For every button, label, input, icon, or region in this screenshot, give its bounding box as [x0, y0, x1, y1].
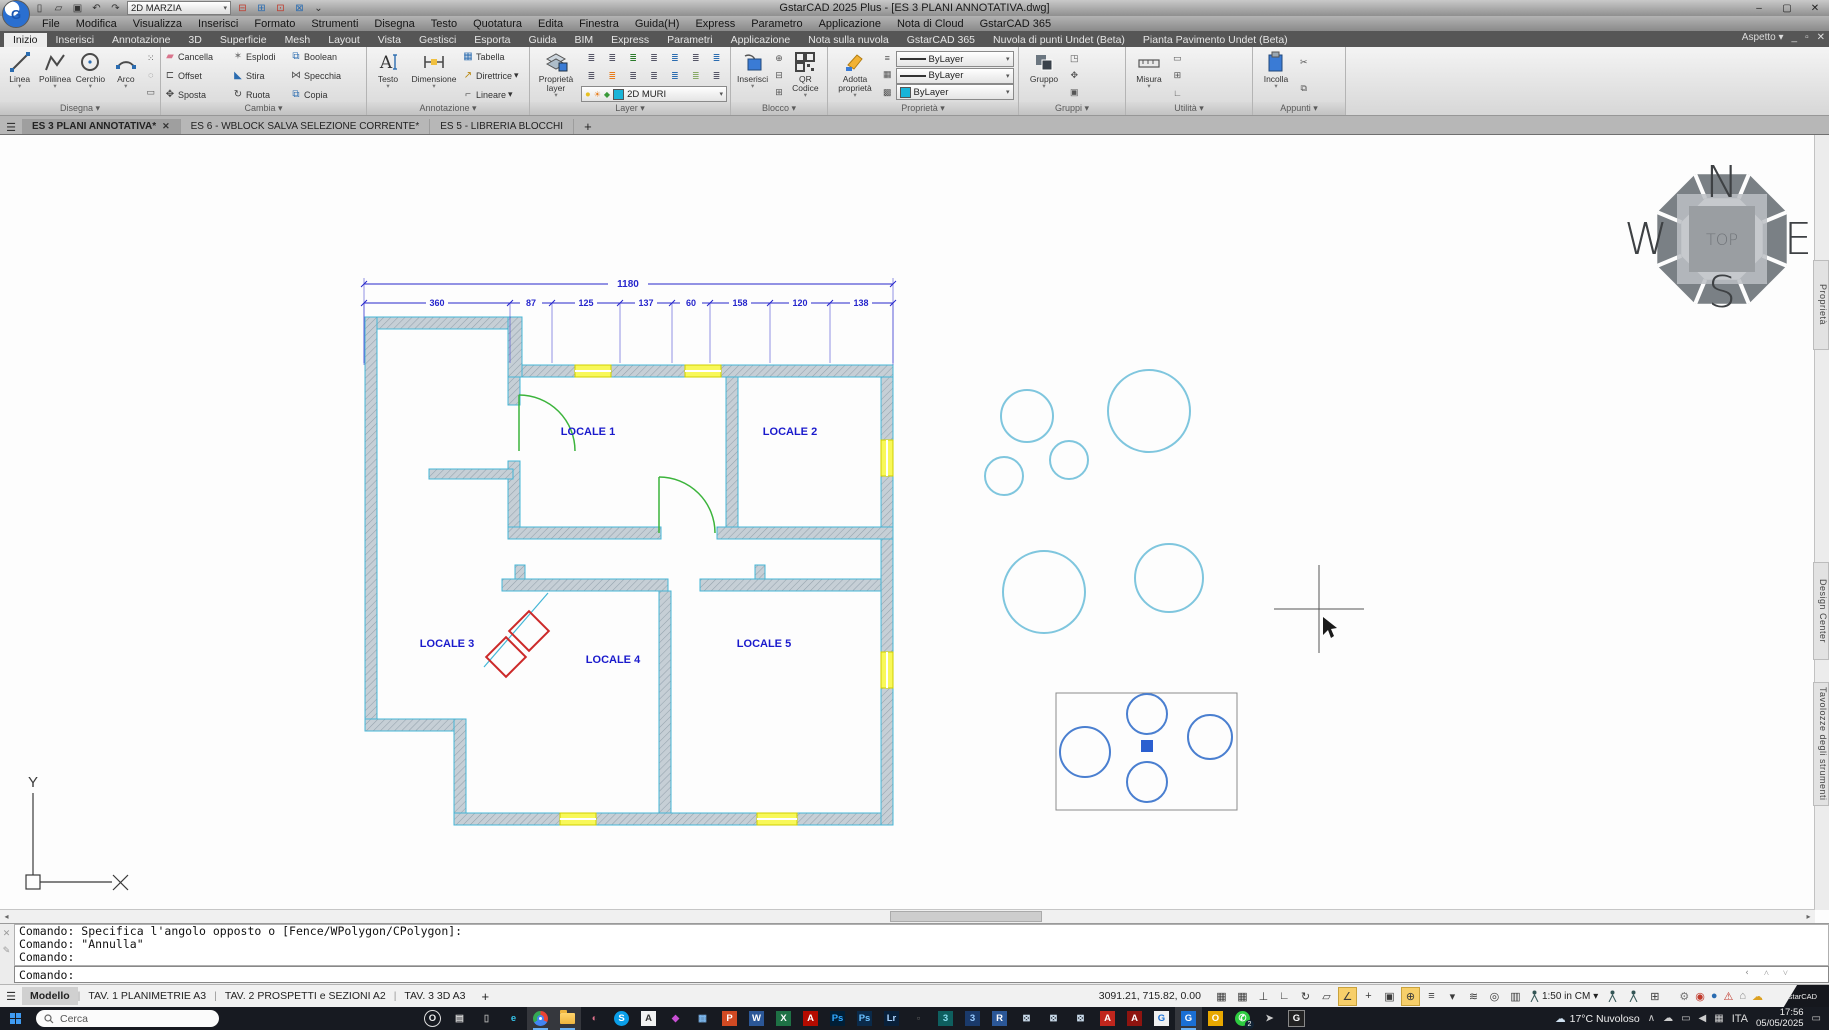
layer-tool-icon[interactable]: ≣ [713, 53, 721, 64]
ribbon-tab-nota-sulla-nuvola[interactable]: Nota sulla nuvola [799, 33, 898, 47]
button-label: Esplodi [246, 52, 276, 62]
chevron-down-icon: ▾ [18, 84, 21, 91]
menu-edita[interactable]: Edita [530, 18, 571, 30]
edit-command-icon[interactable]: ✎ [3, 945, 11, 956]
scroll-up-icon[interactable]: ˄ [1764, 968, 1769, 979]
chevron-down-icon: ▾ [514, 70, 519, 81]
keyboard-icon[interactable]: ▦ [1714, 1013, 1723, 1024]
quick-properties-icon[interactable]: ≡ [1422, 987, 1441, 1006]
maximize-button[interactable]: ▢ [1773, 3, 1801, 14]
taskbar-app-whatsapp[interactable]: ✆2 [1229, 1007, 1256, 1030]
button-inserisci[interactable]: Inserisci▾ [734, 49, 771, 102]
button-arco[interactable]: Arco▾ [109, 49, 142, 102]
attach-icon[interactable]: ⊕ [775, 53, 783, 64]
button-offset[interactable]: ⊏Offset [164, 70, 230, 81]
menu-applicazione[interactable]: Applicazione [811, 18, 889, 30]
start-button[interactable] [0, 1013, 30, 1024]
viewcube[interactable]: NWESTOP [1624, 157, 1812, 318]
clean-screen-icon[interactable]: ▥ [1506, 987, 1525, 1006]
panel-cambia: ▰Cancella✶Esplodi⧉Boolean⊏Offset◣Stira⋈S… [161, 47, 367, 115]
scroll-left-arrow-icon[interactable]: ◂ [0, 910, 13, 923]
command-history[interactable]: Comando: Specifica l'angolo opposto o [F… [14, 924, 1829, 966]
dynamic-input-icon[interactable]: ⊕ [1401, 987, 1420, 1006]
weather-text: 17°C Nuvoloso [1570, 1013, 1640, 1025]
layer-tool-icon[interactable]: ≣ [713, 71, 721, 82]
taskbar-app-notes-app[interactable]: A [635, 1007, 662, 1030]
taskbar-app-lightroom[interactable]: Lr [878, 1007, 905, 1030]
panel-label-cambia[interactable]: Cambia ▾ [161, 102, 366, 115]
taskbar-app-color-picker[interactable]: ◆ [662, 1007, 689, 1030]
ribbon-right-controls: Aspetto ▾_▫✕ [1742, 32, 1825, 43]
chevron-down-icon: ▾ [719, 90, 723, 98]
layer-tool-icon[interactable]: ≣ [692, 71, 700, 82]
button-cancella[interactable]: ▰Cancella [164, 51, 230, 62]
doc-tab-es-3-plani-annotativa[interactable]: ES 3 PLANI ANNOTATIVA*✕ [22, 119, 181, 134]
ribbon-minimize-icon[interactable]: _ [1792, 32, 1798, 43]
panel-label-gruppi[interactable]: Gruppi ▾ [1019, 102, 1125, 115]
button-label: QR Codice [787, 75, 824, 93]
hatch-icon[interactable]: ▩ [883, 87, 892, 98]
panel-tab-tavolozze-degli-strumenti[interactable]: Tavolozze degli strumenti [1813, 682, 1829, 806]
gstarcad-logo-icon[interactable]: G [2, 0, 30, 28]
security-lock-icon[interactable]: ◉ [1695, 990, 1705, 1003]
doc-tab-es-5-libreria-blocchi[interactable]: ES 5 - LIBRERIA BLOCCHI [430, 119, 574, 134]
layer-color-swatch [613, 89, 624, 100]
ribbon-tab-3d[interactable]: 3D [179, 33, 210, 47]
ribbon-tab-vista[interactable]: Vista [369, 33, 410, 47]
button-linea[interactable]: Linea▾ [3, 49, 36, 102]
cancella-icon: ▰ [164, 51, 176, 62]
layout-menu-icon[interactable]: ☰ [0, 990, 22, 1003]
ribbon-tab-annotazione[interactable]: Annotazione [103, 33, 179, 47]
group-tools[interactable]: ◳✥▣ [1068, 49, 1081, 102]
ruler-icon[interactable]: ▭ [1173, 53, 1182, 64]
taskbar-app-paint-app[interactable]: ◐ [581, 1007, 608, 1030]
button-label: Lineare [476, 90, 506, 100]
panel-label-blocco[interactable]: Blocco ▾ [731, 102, 827, 115]
misura-icon [1137, 50, 1161, 74]
clock-date: 05/05/2025 [1756, 1019, 1804, 1030]
panel-content: Gruppo▾◳✥▣ [1019, 47, 1125, 102]
layer-tool-icon[interactable]: ≣ [650, 53, 658, 64]
taskbar-app-cad-toolset-2[interactable]: ⊠ [1040, 1007, 1067, 1030]
ribbon-tab-parametri[interactable]: Parametri [658, 33, 722, 47]
donut-icon[interactable]: ◌ [148, 70, 153, 80]
annotation-scale-combo[interactable]: 1:50 in CM▾ [1530, 990, 1598, 1002]
taskbar-app-phone-link[interactable]: ▯ [473, 1007, 500, 1030]
property-tools[interactable]: ≡▦▩ [881, 49, 894, 102]
room-label: LOCALE 4 [586, 654, 641, 666]
propriet-layer-icon [544, 50, 568, 74]
taskbar-clock[interactable]: 17:5605/05/2025 [1756, 1008, 1804, 1029]
ribbon-tab-gstarcad-365[interactable]: GstarCAD 365 [898, 33, 984, 47]
display-icon[interactable]: ▭ [1681, 1013, 1690, 1024]
ribbon-tab-esporta[interactable]: Esporta [465, 33, 519, 47]
group-edit-icon[interactable]: ✥ [1070, 70, 1078, 81]
menu-strumenti[interactable]: Strumenti [303, 18, 366, 30]
taskbar-app-hidden-app[interactable]: ▫ [905, 1007, 932, 1030]
ribbon-close-icon[interactable]: ✕ [1817, 32, 1825, 43]
minimize-button[interactable]: – [1745, 3, 1773, 14]
lineweight-combo[interactable]: ByLayer▾ [896, 68, 1014, 84]
weather-cloud-icon: ☁ [1555, 1013, 1566, 1025]
ribbon-tab-layout[interactable]: Layout [319, 33, 369, 47]
taskbar-app-autocad[interactable]: A [1094, 1007, 1121, 1030]
scroll-right-arrow-icon[interactable]: ▸ [1802, 910, 1815, 923]
layer-tool-icon[interactable]: ≣ [671, 71, 679, 82]
svg-text:137: 137 [638, 298, 653, 308]
layout-tab-tav-1-planimetrie-a3[interactable]: TAV. 1 PLANIMETRIE A3 [80, 987, 214, 1005]
layout-tab-modello[interactable]: Modello [22, 987, 78, 1005]
draw-more-tools[interactable]: ⁙◌▭ [145, 49, 158, 102]
autocad-lt-icon: A [1127, 1011, 1142, 1026]
taskbar-search[interactable]: Cerca [36, 1010, 219, 1027]
customization-icon[interactable]: ⊞ [1645, 987, 1664, 1006]
annotation-autoscale-icon[interactable]: ≋ [1464, 987, 1483, 1006]
button-tabella[interactable]: ▦Tabella [462, 51, 519, 62]
taskbar-app-gstarcad-tools[interactable]: G [1283, 1007, 1310, 1030]
status-bar: ☰Modello|TAV. 1 PLANIMETRIE A3|TAV. 2 PR… [0, 984, 1829, 1007]
list-icon[interactable]: ▦ [883, 69, 892, 80]
button-ruota[interactable]: ↻Ruota [232, 89, 288, 100]
svg-text:158: 158 [732, 298, 747, 308]
zoom-tool-icon[interactable]: ◎ [1485, 987, 1504, 1006]
button-label: Boolean [304, 52, 337, 62]
copy-clip-icon[interactable]: ⧉ [1301, 83, 1307, 94]
chevron-down-icon: ▾ [804, 93, 807, 100]
esplodi-icon: ✶ [232, 51, 244, 62]
button-incolla[interactable]: Incolla▾ [1256, 49, 1296, 102]
doc-tabs-menu-icon[interactable]: ☰ [0, 121, 22, 134]
linetype-icon[interactable]: ≡ [885, 53, 890, 63]
command-history-line: Comando: Specifica l'angolo opposto o [F… [19, 925, 1824, 938]
button-qr-codice[interactable]: QR Codice▾ [787, 49, 824, 102]
notification-center-icon[interactable]: ▭ [1812, 1013, 1821, 1024]
button-adotta-propriet[interactable]: Adotta proprietà▾ [831, 49, 879, 102]
panel-tab-propriet[interactable]: Proprietà [1813, 260, 1829, 350]
taskbar-app-adobe-app[interactable]: A [797, 1007, 824, 1030]
layout-tab-tav-2-prospetti-e-sezioni-a2[interactable]: TAV. 2 PROSPETTI e SEZIONI A2 [217, 987, 394, 1005]
taskbar-app-edge[interactable]: e [500, 1007, 527, 1030]
button-cerchio[interactable]: Cerchio▾ [74, 49, 107, 102]
menu-testo[interactable]: Testo [423, 18, 465, 30]
taskbar-app-chrome[interactable] [527, 1007, 554, 1030]
close-button[interactable]: ✕ [1801, 3, 1829, 14]
combo-value: 2D MURI [627, 89, 666, 100]
layer-tool-icon[interactable]: ≣ [671, 53, 679, 64]
chevron-down-icon: ▾ [1006, 55, 1010, 63]
ribbon-tab-express[interactable]: Express [602, 33, 658, 47]
property-combos: ByLayer▾ByLayer▾ByLayer▾ [896, 49, 1014, 102]
button-propriet-layer[interactable]: Proprietà layer▾ [533, 49, 579, 102]
scroll-left-icon[interactable]: ‹ [1744, 968, 1749, 979]
scroll-down-icon[interactable]: ˅ [1783, 968, 1788, 979]
menu-nota-di-cloud[interactable]: Nota di Cloud [889, 18, 972, 30]
annotation-visibility-icon[interactable]: ▾ [1443, 987, 1462, 1006]
annotation-autoadd-icon[interactable] [1603, 987, 1622, 1006]
home-icon[interactable]: ⌂ [1739, 990, 1746, 1002]
settings-gear-icon[interactable]: ⚙ [1679, 990, 1689, 1003]
object-snap-icon[interactable]: ∠ [1338, 987, 1357, 1006]
taskbar-app-task-view[interactable]: ▤ [446, 1007, 473, 1030]
panel-content: Inserisci▾⊕⊟⊞QR Codice▾ [731, 47, 827, 102]
button-esplodi[interactable]: ✶Esplodi [232, 51, 288, 62]
panel-annotazione: ATesto▾Dimensione▾▦Tabella↗Direttrice ▾⌐… [367, 47, 530, 115]
ungroup-icon[interactable]: ◳ [1070, 53, 1079, 64]
share-icon[interactable]: ● [1711, 990, 1718, 1002]
ribbon-tab-bim[interactable]: BIM [566, 33, 603, 47]
gstarcad-2025-icon: G [1181, 1011, 1196, 1026]
adotta-propriet-icon [843, 50, 867, 74]
ribbon-tab-applicazione[interactable]: Applicazione [722, 33, 800, 47]
group-select-icon[interactable]: ▣ [1070, 87, 1079, 98]
tabella-icon: ▦ [462, 51, 474, 62]
drawing-canvas[interactable]: 11803608712513760158120138LOCALE 1LOCALE… [0, 135, 1829, 923]
cloud-sync-icon[interactable]: ☁ [1752, 990, 1763, 1003]
chevron-down-icon: ▾ [124, 84, 127, 91]
ortho-mode-icon[interactable]: ∟ [1275, 987, 1294, 1006]
button-copia[interactable]: ⧉Copia [290, 89, 356, 100]
polar-tracking-icon[interactable]: ↻ [1296, 987, 1315, 1006]
layer-thaw-icon: ☀ [594, 90, 601, 99]
layer-tool-icon[interactable]: ≣ [588, 71, 596, 82]
chevron-down-icon: ▾ [89, 84, 92, 91]
ribbon-restore-icon[interactable]: ▫ [1805, 32, 1809, 43]
panel-propriet: Adotta proprietà▾≡▦▩ByLayer▾ByLayer▾ByLa… [828, 47, 1019, 115]
button-lineare[interactable]: ⌐Lineare ▾ [462, 89, 519, 100]
ribbon-tab-mesh[interactable]: Mesh [276, 33, 320, 47]
aspetto-dropdown[interactable]: Aspetto ▾ [1742, 32, 1784, 43]
panel-content: ATesto▾Dimensione▾▦Tabella↗Direttrice ▾⌐… [367, 47, 529, 102]
chevron-down-icon: ▾ [1593, 991, 1598, 1002]
taskbar-app-opera[interactable]: O [419, 1007, 446, 1030]
object-snap-tracking-icon[interactable]: + [1359, 987, 1378, 1006]
layer-tool-icon[interactable]: ≣ [609, 53, 617, 64]
menu-gstarcad-365[interactable]: GstarCAD 365 [972, 18, 1060, 30]
ribbon-tab-guida[interactable]: Guida [519, 33, 565, 47]
autocad-icon: A [1100, 1011, 1115, 1026]
close-tab-icon[interactable]: ✕ [162, 121, 170, 132]
taskbar-app-gstarcad[interactable]: G [1148, 1007, 1175, 1030]
horizontal-scrollbar[interactable]: ◂▸ [0, 909, 1815, 923]
layer-tool-icon[interactable]: ≣ [692, 53, 700, 64]
gstarcad-corner-logo: GstarCAD [1771, 985, 1829, 1007]
task-view-icon: ▤ [452, 1011, 467, 1026]
layer-tool-icon[interactable]: ≣ [609, 71, 617, 82]
layer-tool-icon[interactable]: ≣ [629, 71, 637, 82]
taskbar-app-file-explorer[interactable] [554, 1007, 581, 1030]
polilinea-icon [43, 50, 67, 74]
powerpoint-icon: P [722, 1011, 737, 1026]
panel-tab-design-center[interactable]: Design Center [1813, 562, 1829, 660]
button-misura[interactable]: Misura▾ [1129, 49, 1169, 102]
panel-content: Proprietà layer▾≣≣≣≣≣≣≣≣≣≣≣≣≣≣●☀◆2D MURI… [530, 47, 730, 102]
svg-text:120: 120 [792, 298, 807, 308]
id-point-icon[interactable]: ∟ [1173, 88, 1182, 98]
modify-row: ⊏Offset◣Stira⋈Specchia [164, 70, 356, 81]
utility-tools[interactable]: ▭⊞∟ [1171, 49, 1184, 102]
ribbon-tab-nuvola-di-punti-undet-beta[interactable]: Nuvola di punti Undet (Beta) [984, 33, 1134, 47]
tray-expand-icon[interactable]: ∧ [1648, 1013, 1655, 1024]
ucs-y-label: Y [28, 774, 38, 791]
button-label: Proprietà layer [533, 75, 579, 93]
lightroom-icon: Lr [884, 1011, 899, 1026]
button-gruppo[interactable]: Gruppo▾ [1022, 49, 1066, 102]
button-specchia[interactable]: ⋈Specchia [290, 70, 356, 81]
onedrive-icon[interactable]: ☁ [1663, 1013, 1673, 1024]
button-testo[interactable]: ATesto▾ [370, 49, 406, 102]
annotation-col: ▦Tabella↗Direttrice ▾⌐Lineare ▾ [462, 49, 519, 102]
taskbar-app-cad-toolset-1[interactable]: ⊠ [1013, 1007, 1040, 1030]
new-doc-tab-button[interactable]: + [574, 119, 602, 134]
panel-label-annotazione[interactable]: Annotazione ▾ [367, 102, 529, 115]
document-tab-bar: ☰ES 3 PLANI ANNOTATIVA*✕ES 6 - WBLOCK SA… [0, 116, 1829, 135]
taskbar-app-cad-toolset-3[interactable]: ⊠ [1067, 1007, 1094, 1030]
taskbar-app-media-app[interactable]: ➤ [1256, 1007, 1283, 1030]
cut-icon[interactable]: ✂ [1300, 57, 1308, 68]
color-combo[interactable]: ByLayer▾ [896, 84, 1014, 100]
table-block [1056, 693, 1237, 810]
language-indicator[interactable]: ITA [1732, 1013, 1748, 1025]
layer-tool-icon[interactable]: ≣ [650, 71, 658, 82]
taskbar-app-calculator[interactable]: ▦ [689, 1007, 716, 1030]
snap-mode-icon[interactable]: ▦ [1233, 987, 1252, 1006]
polar-snap-icon[interactable]: ⊥ [1254, 987, 1273, 1006]
ribbon-tab-superficie[interactable]: Superficie [211, 33, 276, 47]
3ds-max-icon: 3 [938, 1011, 953, 1026]
menu-parametro[interactable]: Parametro [743, 18, 810, 30]
button-label: Cancella [178, 52, 213, 62]
panel-label-layer[interactable]: Layer ▾ [530, 102, 730, 115]
button-stira[interactable]: ◣Stira [232, 70, 288, 81]
doc-tab-es-6-wblock-salva-selezione-corrente[interactable]: ES 6 - WBLOCK SALVA SELEZIONE CORRENTE* [181, 119, 431, 134]
boolean-icon: ⧉ [290, 51, 302, 62]
scrollbar-thumb[interactable] [890, 911, 1042, 922]
room-label: LOCALE 1 [561, 426, 615, 438]
chevron-down-icon: ▾ [386, 84, 389, 91]
button-sposta[interactable]: ✥Sposta [164, 89, 230, 100]
menu-file[interactable]: File [34, 18, 68, 30]
ribbon-tab-pianta-pavimento-undet-beta[interactable]: Pianta Pavimento Undet (Beta) [1134, 33, 1297, 47]
command-input[interactable]: Comando: ‹ ˄ ˅ [14, 966, 1829, 983]
photoshop-icon: Ps [830, 1011, 845, 1026]
menu-modifica[interactable]: Modifica [68, 18, 125, 30]
taskbar-app-skype[interactable]: S [608, 1007, 635, 1030]
clipboard-tools[interactable]: ✂⧉ [1298, 49, 1310, 102]
taskbar-app-autocad-lt[interactable]: A [1121, 1007, 1148, 1030]
button-boolean[interactable]: ⧉Boolean [290, 51, 356, 62]
weather-widget[interactable]: ☁17°C Nuvoloso [1555, 1013, 1640, 1025]
taskbar-app-revit[interactable]: R [986, 1007, 1013, 1030]
inserisci-icon [741, 50, 765, 74]
windows-taskbar: Cerca O▤▯e◐SA◆▦PWXAPsPsLr▫33R⊠⊠⊠AAGGO✆2➤… [0, 1007, 1829, 1030]
taskbar-app-office-hub[interactable]: O [1202, 1007, 1229, 1030]
menu-formato[interactable]: Formato [246, 18, 303, 30]
layer-state-icons: ≣≣≣≣≣≣≣≣≣≣≣≣≣≣ [581, 49, 727, 86]
annotation-sync-icon[interactable] [1624, 987, 1643, 1006]
menu-inserisci[interactable]: Inserisci [190, 18, 246, 30]
button-direttrice[interactable]: ↗Direttrice ▾ [462, 70, 519, 81]
menu-disegna[interactable]: Disegna [366, 18, 422, 30]
volume-icon[interactable]: ◀ [1699, 1013, 1707, 1024]
command-scroll-icons[interactable]: ‹ ˄ ˅ [1744, 968, 1788, 979]
dimension-total: 1180 [617, 279, 639, 290]
taskbar-app-powerpoint[interactable]: P [716, 1007, 743, 1030]
chevron-down-icon: ▾ [53, 84, 56, 91]
edit-block-icon[interactable]: ⊟ [775, 70, 783, 81]
panel-label-disegna[interactable]: Disegna ▾ [0, 102, 160, 115]
layer-combo[interactable]: ●☀◆2D MURI▾ [581, 86, 727, 102]
skype-icon: S [614, 1011, 629, 1026]
menu-visualizza[interactable]: Visualizza [125, 18, 190, 30]
staircase [484, 593, 549, 677]
block-tools[interactable]: ⊕⊟⊞ [773, 49, 785, 102]
menu-quotatura[interactable]: Quotatura [465, 18, 530, 30]
panel-label-appunti[interactable]: Appunti ▾ [1253, 102, 1345, 115]
ribbon-tab-inserisci[interactable]: Inserisci [47, 33, 104, 47]
layout-tab-tav-3-3d-a3[interactable]: TAV. 3 3D A3 [396, 987, 473, 1005]
panel-content: ▰Cancella✶Esplodi⧉Boolean⊏Offset◣Stira⋈S… [161, 47, 366, 102]
floor-plan-walls [365, 317, 893, 825]
layer-tool-icon[interactable]: ≣ [588, 53, 596, 64]
panel-label-utilit[interactable]: Utilità ▾ [1126, 102, 1252, 115]
taskbar-app-word[interactable]: W [743, 1007, 770, 1030]
taskbar-app-photoshop[interactable]: Ps [824, 1007, 851, 1030]
button-polilinea[interactable]: Polilinea▾ [38, 49, 71, 102]
room-label: LOCALE 3 [420, 638, 474, 650]
word-icon: W [749, 1011, 764, 1026]
ribbon-tab-gestisci[interactable]: Gestisci [410, 33, 465, 47]
new-layout-button[interactable]: + [474, 989, 498, 1004]
layer-tool-icon[interactable]: ≣ [629, 53, 637, 64]
panel-blocco: Inserisci▾⊕⊟⊞QR Codice▾Blocco ▾ [731, 47, 828, 115]
scale-value: 1:50 in CM [1542, 991, 1590, 1002]
taskbar-app-app-3-blue[interactable]: 3 [959, 1007, 986, 1030]
room-labels: LOCALE 1LOCALE 2LOCALE 3LOCALE 4LOCALE 5 [420, 426, 817, 666]
ucs-icon: Y [26, 774, 128, 890]
quick-calc-icon[interactable]: ⊞ [1174, 70, 1182, 81]
cerchio-icon [78, 50, 102, 74]
attributes-icon[interactable]: ⊞ [775, 87, 783, 98]
points-icon[interactable]: ⁙ [147, 53, 155, 64]
lineweight-display-icon[interactable]: ▣ [1380, 987, 1399, 1006]
specchia-icon: ⋈ [290, 70, 302, 81]
linetype-combo[interactable]: ByLayer▾ [896, 51, 1014, 67]
paint-app-icon: ◐ [587, 1011, 602, 1026]
button-dimensione[interactable]: Dimensione▾ [408, 49, 460, 102]
close-command-icon[interactable]: ✕ [3, 928, 11, 939]
taskbar-app-photoshop-beta[interactable]: Ps [851, 1007, 878, 1030]
window-title: GstarCAD 2025 Plus - [ES 3 PLANI ANNOTAT… [0, 2, 1829, 14]
testo-icon: A [376, 50, 400, 74]
menu-express[interactable]: Express [687, 18, 743, 30]
dynamic-ucs-icon[interactable]: ▱ [1317, 987, 1336, 1006]
taskbar-app-3ds-max[interactable]: 3 [932, 1007, 959, 1030]
revit-icon: R [992, 1011, 1007, 1026]
crosshair-cursor [1274, 565, 1364, 653]
taskbar-app-excel[interactable]: X [770, 1007, 797, 1030]
ribbon-tab-inizio[interactable]: Inizio [4, 33, 47, 47]
panel-label-propriet[interactable]: Proprietà ▾ [828, 102, 1018, 115]
menu-finestra[interactable]: Finestra [571, 18, 627, 30]
rectangle-icon[interactable]: ▭ [147, 87, 156, 98]
viewcube-east: E [1784, 214, 1812, 265]
menu-guida-h[interactable]: Guida(H) [627, 18, 688, 30]
grid-display-icon[interactable]: ▦ [1212, 987, 1231, 1006]
svg-text:360: 360 [429, 298, 444, 308]
taskbar-app-gstarcad-2025[interactable]: G [1175, 1007, 1202, 1030]
alert-icon[interactable]: ⚠ [1723, 990, 1733, 1003]
